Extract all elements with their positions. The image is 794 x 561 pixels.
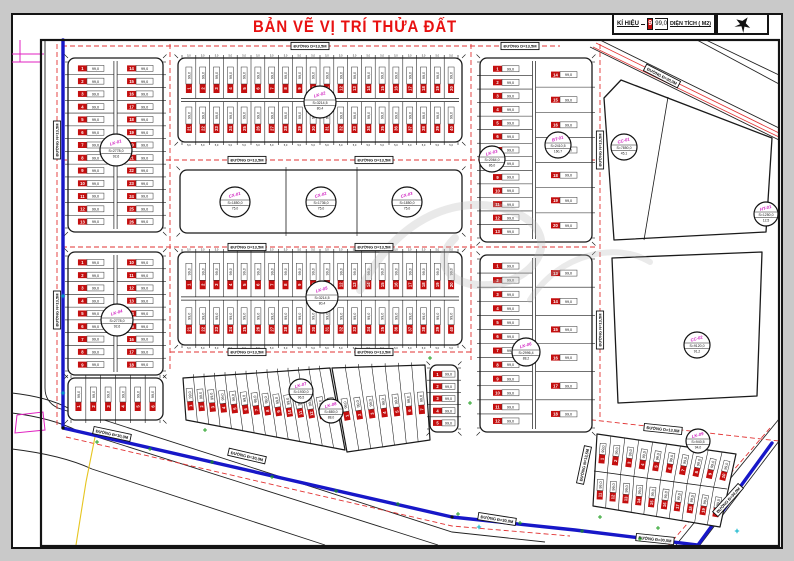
svg-text:21: 21 bbox=[187, 126, 192, 131]
svg-text:99,0: 99,0 bbox=[141, 207, 148, 211]
svg-text:11: 11 bbox=[495, 405, 500, 410]
svg-text:22: 22 bbox=[200, 326, 205, 331]
road-label: ĐƯỜNG Đ=30,0M bbox=[478, 512, 517, 525]
svg-text:99,0: 99,0 bbox=[422, 112, 426, 119]
svg-text:5,0: 5,0 bbox=[339, 143, 343, 147]
svg-text:5,0: 5,0 bbox=[256, 143, 260, 147]
svg-text:5,0: 5,0 bbox=[394, 54, 398, 58]
svg-text:16: 16 bbox=[394, 282, 399, 287]
block-j2: 199,0299,0399,0499,0599,0699,0799,0 bbox=[332, 362, 430, 452]
svg-text:160,7: 160,7 bbox=[554, 149, 562, 153]
svg-text:99,0: 99,0 bbox=[507, 335, 514, 339]
svg-text:26: 26 bbox=[256, 326, 261, 331]
svg-text:99,0: 99,0 bbox=[284, 72, 288, 79]
svg-text:ĐƯỜNG N=13,5M: ĐƯỜNG N=13,5M bbox=[598, 313, 603, 347]
svg-text:99,0: 99,0 bbox=[210, 392, 215, 400]
svg-text:ĐƯỜNG D=13,5M: ĐƯỜNG D=13,5M bbox=[357, 350, 391, 355]
svg-text:ĐƯỜNG D=13,5M: ĐƯỜNG D=13,5M bbox=[503, 44, 537, 49]
svg-text:99,0: 99,0 bbox=[507, 391, 514, 395]
svg-text:5,0: 5,0 bbox=[270, 346, 274, 350]
svg-text:99,0: 99,0 bbox=[151, 391, 155, 398]
svg-text:5,0: 5,0 bbox=[408, 346, 412, 350]
block-j3: 199,0299,0399,0499,0599,0 bbox=[427, 362, 462, 436]
svg-text:S=880,0: S=880,0 bbox=[324, 410, 337, 414]
svg-text:5,0: 5,0 bbox=[353, 143, 357, 147]
svg-text:5,0: 5,0 bbox=[187, 54, 191, 58]
svg-text:99,0: 99,0 bbox=[450, 313, 454, 320]
survey-marker-BT-01: BT-01S=2410,5160,7 bbox=[545, 132, 571, 158]
svg-text:16: 16 bbox=[129, 337, 134, 342]
svg-text:99,0: 99,0 bbox=[107, 391, 111, 398]
svg-text:19: 19 bbox=[129, 130, 134, 135]
road-label: ĐƯỜNG D=13,5M bbox=[355, 243, 393, 250]
svg-text:99,0: 99,0 bbox=[270, 72, 274, 79]
svg-text:ĐƯỜNG N=13,5M: ĐƯỜNG N=13,5M bbox=[55, 123, 60, 157]
svg-text:99,0: 99,0 bbox=[507, 67, 514, 71]
svg-text:24: 24 bbox=[228, 126, 233, 131]
svg-text:5,0: 5,0 bbox=[422, 346, 426, 350]
svg-text:13: 13 bbox=[352, 282, 357, 287]
svg-text:99,0: 99,0 bbox=[312, 268, 316, 275]
svg-text:5,0: 5,0 bbox=[297, 54, 301, 58]
svg-text:20: 20 bbox=[449, 86, 454, 91]
svg-text:99,0: 99,0 bbox=[381, 268, 385, 275]
svg-text:5,0: 5,0 bbox=[394, 248, 398, 252]
legend-sample-id: 9 bbox=[647, 18, 653, 30]
svg-text:99,0: 99,0 bbox=[445, 397, 452, 401]
svg-text:5,0: 5,0 bbox=[297, 143, 301, 147]
svg-text:99,0: 99,0 bbox=[77, 391, 81, 398]
svg-text:99,0: 99,0 bbox=[188, 72, 192, 79]
svg-text:12: 12 bbox=[338, 86, 343, 91]
svg-text:39: 39 bbox=[435, 326, 440, 331]
svg-text:99,0: 99,0 bbox=[298, 268, 302, 275]
svg-text:40: 40 bbox=[449, 126, 454, 131]
svg-text:15: 15 bbox=[553, 327, 558, 332]
svg-text:99,0: 99,0 bbox=[507, 377, 514, 381]
survey-marker-LK-09: LK-09S=940,594,0 bbox=[686, 429, 710, 453]
svg-text:S=7850,0: S=7850,0 bbox=[616, 146, 631, 150]
svg-text:99,0: 99,0 bbox=[92, 338, 99, 342]
svg-text:99,0: 99,0 bbox=[601, 445, 606, 453]
svg-text:28: 28 bbox=[283, 326, 288, 331]
road-label: ĐƯỜNG N=13,5M bbox=[53, 291, 60, 329]
survey-marker-LK-05: LK-05S=3214,580,4 bbox=[306, 281, 338, 313]
svg-text:45,1: 45,1 bbox=[621, 151, 628, 155]
svg-text:99,0: 99,0 bbox=[141, 67, 148, 71]
svg-text:99,0: 99,0 bbox=[141, 363, 148, 367]
svg-text:99,0: 99,0 bbox=[565, 98, 572, 102]
svg-text:12,5: 12,5 bbox=[763, 218, 770, 222]
svg-text:37: 37 bbox=[407, 326, 412, 331]
survey-marker-LK-08: LK-08S=880,088,0 bbox=[319, 399, 343, 423]
svg-text:88,2: 88,2 bbox=[523, 356, 530, 360]
svg-text:99,0: 99,0 bbox=[326, 72, 330, 79]
road-label: ĐƯỜNG N=13,5M bbox=[596, 311, 603, 349]
svg-text:5,0: 5,0 bbox=[422, 143, 426, 147]
road-label: ĐƯỜNG N=13,5M bbox=[577, 446, 592, 485]
svg-text:99,0: 99,0 bbox=[92, 156, 99, 160]
svg-text:99,0: 99,0 bbox=[312, 72, 316, 79]
svg-text:13: 13 bbox=[352, 86, 357, 91]
svg-text:30: 30 bbox=[311, 326, 316, 331]
svg-text:99,0: 99,0 bbox=[215, 313, 219, 320]
svg-text:80,4: 80,4 bbox=[317, 106, 324, 110]
svg-text:23: 23 bbox=[214, 126, 219, 131]
svg-text:17: 17 bbox=[129, 350, 134, 355]
svg-text:15: 15 bbox=[553, 97, 558, 102]
svg-text:99,0: 99,0 bbox=[353, 112, 357, 119]
svg-text:99,0: 99,0 bbox=[565, 123, 572, 127]
page: { "title": "BẢN VẼ VỊ TRÍ THỬA ĐẤT", "le… bbox=[0, 0, 794, 561]
svg-text:99,0: 99,0 bbox=[201, 268, 205, 275]
svg-text:99,0: 99,0 bbox=[92, 131, 99, 135]
svg-text:5,0: 5,0 bbox=[201, 54, 205, 58]
svg-text:5,0: 5,0 bbox=[297, 346, 301, 350]
svg-text:S=9120,0: S=9120,0 bbox=[689, 344, 704, 348]
svg-text:99,0: 99,0 bbox=[445, 385, 452, 389]
svg-text:99,0: 99,0 bbox=[270, 313, 274, 320]
svg-text:99,0: 99,0 bbox=[141, 93, 148, 97]
svg-text:99,0: 99,0 bbox=[229, 268, 233, 275]
svg-text:20: 20 bbox=[553, 223, 558, 228]
svg-text:16: 16 bbox=[553, 123, 558, 128]
svg-text:99,0: 99,0 bbox=[141, 338, 148, 342]
svg-text:99,0: 99,0 bbox=[326, 313, 330, 320]
svg-text:39: 39 bbox=[435, 126, 440, 131]
svg-text:99,0: 99,0 bbox=[408, 268, 412, 275]
survey-marker-LK-02: LK-02S=3214,580,4 bbox=[304, 86, 336, 118]
svg-text:17: 17 bbox=[553, 383, 558, 388]
survey-marker-HT-01: HT-01S=1250,012,5 bbox=[754, 202, 778, 226]
svg-text:92,6: 92,6 bbox=[113, 154, 120, 158]
svg-text:75,0: 75,0 bbox=[404, 206, 411, 210]
svg-text:11: 11 bbox=[129, 273, 134, 278]
svg-text:99,0: 99,0 bbox=[507, 230, 514, 234]
svg-text:99,0: 99,0 bbox=[298, 112, 302, 119]
svg-text:ĐƯỜNG N=13,5M: ĐƯỜNG N=13,5M bbox=[598, 133, 603, 167]
svg-text:26: 26 bbox=[256, 126, 261, 131]
svg-text:99,0: 99,0 bbox=[422, 268, 426, 275]
compass-box bbox=[716, 13, 769, 35]
svg-text:99,0: 99,0 bbox=[284, 112, 288, 119]
svg-text:5,0: 5,0 bbox=[339, 346, 343, 350]
svg-text:27: 27 bbox=[269, 126, 274, 131]
svg-text:99,0: 99,0 bbox=[92, 169, 99, 173]
svg-text:99,0: 99,0 bbox=[122, 391, 126, 398]
svg-text:10: 10 bbox=[495, 390, 500, 395]
svg-text:15: 15 bbox=[129, 79, 134, 84]
svg-text:99,0: 99,0 bbox=[257, 268, 261, 275]
svg-text:99,0: 99,0 bbox=[141, 220, 148, 224]
svg-text:99,0: 99,0 bbox=[92, 391, 96, 398]
svg-text:S=3214,5: S=3214,5 bbox=[314, 296, 329, 300]
svg-text:99,0: 99,0 bbox=[270, 268, 274, 275]
svg-text:18: 18 bbox=[421, 282, 426, 287]
svg-text:99,0: 99,0 bbox=[220, 393, 225, 401]
svg-text:99,0: 99,0 bbox=[612, 483, 616, 490]
svg-text:ĐƯỜNG D=13,5M: ĐƯỜNG D=13,5M bbox=[357, 245, 391, 250]
svg-text:99,0: 99,0 bbox=[229, 313, 233, 320]
svg-text:10: 10 bbox=[80, 181, 85, 186]
svg-text:5,0: 5,0 bbox=[435, 248, 439, 252]
svg-text:5,0: 5,0 bbox=[408, 248, 412, 252]
svg-text:12: 12 bbox=[495, 419, 500, 424]
svg-text:99,0: 99,0 bbox=[92, 144, 99, 148]
svg-text:19: 19 bbox=[553, 198, 558, 203]
svg-text:5,0: 5,0 bbox=[422, 248, 426, 252]
road-label: ĐƯỜNG N=13,5M bbox=[596, 131, 603, 169]
svg-text:5,0: 5,0 bbox=[325, 346, 329, 350]
svg-text:99,0: 99,0 bbox=[141, 195, 148, 199]
svg-text:5,0: 5,0 bbox=[449, 346, 453, 350]
svg-text:99,0: 99,0 bbox=[201, 313, 205, 320]
svg-text:99,0: 99,0 bbox=[141, 156, 148, 160]
svg-text:99,0: 99,0 bbox=[243, 313, 247, 320]
svg-text:5,0: 5,0 bbox=[325, 248, 329, 252]
svg-text:11: 11 bbox=[80, 194, 85, 199]
svg-text:99,0: 99,0 bbox=[141, 325, 148, 329]
svg-text:99,0: 99,0 bbox=[507, 363, 514, 367]
svg-text:99,0: 99,0 bbox=[92, 325, 99, 329]
svg-text:33: 33 bbox=[352, 326, 357, 331]
svg-text:99,0: 99,0 bbox=[92, 105, 99, 109]
svg-text:99,0: 99,0 bbox=[422, 313, 426, 320]
survey-marker-CC-01: CC-01S=7850,045,1 bbox=[611, 134, 637, 160]
svg-text:35: 35 bbox=[380, 126, 385, 131]
svg-text:21: 21 bbox=[187, 326, 192, 331]
svg-text:12: 12 bbox=[495, 215, 500, 220]
svg-text:5,0: 5,0 bbox=[339, 248, 343, 252]
legend-box: KÍ HIỆU 9 99,0 DIỆN TÍCH ( M2) bbox=[612, 13, 716, 35]
svg-text:99,0: 99,0 bbox=[507, 81, 514, 85]
svg-text:99,0: 99,0 bbox=[141, 299, 148, 303]
svg-text:29: 29 bbox=[297, 326, 302, 331]
svg-text:S=1850,0: S=1850,0 bbox=[227, 201, 242, 205]
svg-text:99,0: 99,0 bbox=[215, 72, 219, 79]
svg-text:99,0: 99,0 bbox=[243, 268, 247, 275]
svg-text:5,0: 5,0 bbox=[435, 143, 439, 147]
road-label: ĐƯỜNG D=13,5M bbox=[228, 348, 266, 355]
svg-text:99,0: 99,0 bbox=[565, 199, 572, 203]
svg-text:99,0: 99,0 bbox=[243, 72, 247, 79]
svg-text:10: 10 bbox=[129, 260, 134, 265]
svg-text:18: 18 bbox=[421, 86, 426, 91]
svg-text:99,0: 99,0 bbox=[419, 395, 424, 402]
survey-marker-CX-03: CX-03S=1850,075,0 bbox=[392, 187, 422, 217]
svg-text:18: 18 bbox=[553, 412, 558, 417]
svg-text:99,0: 99,0 bbox=[651, 489, 656, 497]
svg-text:36: 36 bbox=[394, 126, 399, 131]
svg-text:99,0: 99,0 bbox=[565, 328, 572, 332]
svg-text:99,0: 99,0 bbox=[141, 80, 148, 84]
block-f bbox=[612, 252, 762, 403]
svg-text:20: 20 bbox=[449, 282, 454, 287]
svg-text:99,0: 99,0 bbox=[565, 300, 572, 304]
svg-text:25: 25 bbox=[242, 326, 247, 331]
svg-text:99,0: 99,0 bbox=[339, 72, 343, 79]
svg-text:5,0: 5,0 bbox=[215, 248, 219, 252]
svg-text:5,0: 5,0 bbox=[201, 248, 205, 252]
svg-text:99,0: 99,0 bbox=[136, 391, 140, 398]
svg-text:13: 13 bbox=[80, 219, 85, 224]
svg-text:S=2996,4: S=2996,4 bbox=[518, 351, 533, 355]
svg-text:5,0: 5,0 bbox=[242, 143, 246, 147]
svg-text:5,0: 5,0 bbox=[270, 143, 274, 147]
svg-text:99,0: 99,0 bbox=[422, 72, 426, 79]
svg-text:99,0: 99,0 bbox=[381, 112, 385, 119]
svg-text:99,0: 99,0 bbox=[436, 112, 440, 119]
survey-marker-LK-07: LK-07S=1930,096,5 bbox=[289, 379, 313, 403]
svg-text:5,0: 5,0 bbox=[366, 54, 370, 58]
svg-text:16: 16 bbox=[394, 86, 399, 91]
svg-text:S=1250,0: S=1250,0 bbox=[758, 213, 773, 217]
svg-text:99,0: 99,0 bbox=[395, 72, 399, 79]
svg-text:99,0: 99,0 bbox=[599, 481, 603, 488]
svg-text:99,0: 99,0 bbox=[92, 287, 99, 291]
svg-text:99,0: 99,0 bbox=[394, 397, 399, 405]
svg-text:99,0: 99,0 bbox=[229, 72, 233, 79]
svg-text:99,0: 99,0 bbox=[92, 363, 99, 367]
svg-text:75,0: 75,0 bbox=[232, 206, 239, 210]
svg-text:34: 34 bbox=[366, 326, 371, 331]
svg-text:31: 31 bbox=[325, 326, 330, 331]
svg-text:99,0: 99,0 bbox=[229, 112, 233, 119]
svg-text:99,0: 99,0 bbox=[243, 112, 247, 119]
svg-text:5,0: 5,0 bbox=[366, 143, 370, 147]
svg-text:99,0: 99,0 bbox=[445, 422, 452, 426]
svg-text:ĐƯỜNG D=13,5M: ĐƯỜNG D=13,5M bbox=[293, 44, 327, 49]
svg-text:99,0: 99,0 bbox=[353, 268, 357, 275]
svg-text:99,0: 99,0 bbox=[92, 67, 99, 71]
svg-text:99,0: 99,0 bbox=[141, 312, 148, 316]
svg-text:99,0: 99,0 bbox=[367, 112, 371, 119]
svg-text:99,0: 99,0 bbox=[215, 112, 219, 119]
svg-text:15: 15 bbox=[380, 282, 385, 287]
svg-text:99,0: 99,0 bbox=[284, 313, 288, 320]
svg-text:14: 14 bbox=[553, 299, 558, 304]
block-e bbox=[604, 80, 772, 240]
svg-text:99,0: 99,0 bbox=[284, 268, 288, 275]
svg-text:88,0: 88,0 bbox=[328, 415, 335, 419]
svg-text:99,0: 99,0 bbox=[507, 293, 514, 297]
svg-text:99,0: 99,0 bbox=[92, 261, 99, 265]
svg-text:ĐƯỜNG D=13,5M: ĐƯỜNG D=13,5M bbox=[230, 158, 264, 163]
svg-text:5,0: 5,0 bbox=[449, 143, 453, 147]
svg-text:26: 26 bbox=[129, 219, 134, 224]
svg-text:99,0: 99,0 bbox=[92, 207, 99, 211]
svg-text:5,0: 5,0 bbox=[380, 54, 384, 58]
svg-text:99,0: 99,0 bbox=[565, 384, 572, 388]
block-g2: 199,0299,0399,0499,0599,0699,0 bbox=[65, 375, 167, 424]
svg-text:ĐƯỜNG D=13,5M: ĐƯỜNG D=13,5M bbox=[357, 158, 391, 163]
svg-text:99,0: 99,0 bbox=[199, 392, 204, 400]
svg-text:99,0: 99,0 bbox=[141, 261, 148, 265]
svg-text:99,0: 99,0 bbox=[664, 491, 669, 499]
svg-text:99,0: 99,0 bbox=[507, 420, 514, 424]
svg-text:94,0: 94,0 bbox=[695, 445, 702, 449]
svg-text:25: 25 bbox=[129, 207, 134, 212]
svg-text:99,0: 99,0 bbox=[141, 274, 148, 278]
svg-text:5,0: 5,0 bbox=[270, 248, 274, 252]
svg-text:99,0: 99,0 bbox=[141, 182, 148, 186]
svg-text:5,0: 5,0 bbox=[311, 248, 315, 252]
svg-text:99,0: 99,0 bbox=[436, 313, 440, 320]
svg-text:30: 30 bbox=[311, 126, 316, 131]
svg-text:75,0: 75,0 bbox=[318, 206, 325, 210]
svg-text:14: 14 bbox=[553, 72, 558, 77]
svg-text:99,0: 99,0 bbox=[141, 105, 148, 109]
svg-text:99,0: 99,0 bbox=[298, 72, 302, 79]
svg-text:99,0: 99,0 bbox=[141, 131, 148, 135]
svg-text:99,0: 99,0 bbox=[625, 485, 629, 492]
svg-text:5,0: 5,0 bbox=[311, 54, 315, 58]
svg-text:5,0: 5,0 bbox=[201, 143, 205, 147]
svg-text:99,0: 99,0 bbox=[141, 350, 148, 354]
svg-text:5,0: 5,0 bbox=[284, 54, 288, 58]
svg-text:5,0: 5,0 bbox=[270, 54, 274, 58]
svg-text:99,0: 99,0 bbox=[367, 72, 371, 79]
survey-marker-LK-03: LK-03S=2064,086,0 bbox=[479, 146, 505, 172]
svg-text:16: 16 bbox=[553, 355, 558, 360]
svg-text:99,0: 99,0 bbox=[339, 268, 343, 275]
svg-text:ĐƯỜNG N=13,5M: ĐƯỜNG N=13,5M bbox=[55, 293, 60, 327]
svg-text:99,0: 99,0 bbox=[188, 112, 192, 119]
svg-text:33: 33 bbox=[352, 126, 357, 131]
svg-text:99,0: 99,0 bbox=[507, 216, 514, 220]
svg-text:99,0: 99,0 bbox=[507, 149, 514, 153]
svg-text:S=3214,5: S=3214,5 bbox=[312, 101, 327, 105]
svg-text:17: 17 bbox=[407, 86, 412, 91]
svg-text:99,0: 99,0 bbox=[507, 122, 514, 126]
svg-text:5,0: 5,0 bbox=[284, 346, 288, 350]
svg-text:99,0: 99,0 bbox=[141, 144, 148, 148]
svg-text:99,0: 99,0 bbox=[450, 112, 454, 119]
svg-text:99,0: 99,0 bbox=[615, 447, 620, 455]
svg-text:99,0: 99,0 bbox=[565, 224, 572, 228]
svg-text:5,0: 5,0 bbox=[187, 346, 191, 350]
road-label: ĐƯỜNG D=13,5M bbox=[228, 156, 266, 163]
svg-text:5,0: 5,0 bbox=[311, 143, 315, 147]
svg-text:99,0: 99,0 bbox=[201, 72, 205, 79]
drawing-title-text: BẢN VẼ VỊ TRÍ THỬA ĐẤT bbox=[253, 17, 457, 36]
svg-text:99,0: 99,0 bbox=[507, 108, 514, 112]
svg-text:5,0: 5,0 bbox=[422, 54, 426, 58]
svg-text:99,0: 99,0 bbox=[339, 112, 343, 119]
svg-text:99,0: 99,0 bbox=[92, 80, 99, 84]
road-label: ĐƯỜNG D=13,5M bbox=[355, 156, 393, 163]
svg-text:16: 16 bbox=[129, 92, 134, 97]
svg-text:5,0: 5,0 bbox=[256, 54, 260, 58]
svg-text:96,5: 96,5 bbox=[298, 395, 305, 399]
svg-text:99,0: 99,0 bbox=[141, 118, 148, 122]
svg-text:99,0: 99,0 bbox=[270, 112, 274, 119]
svg-text:S=2778,0: S=2778,0 bbox=[108, 149, 123, 153]
svg-text:25: 25 bbox=[242, 126, 247, 131]
svg-text:10: 10 bbox=[495, 188, 500, 193]
survey-marker-LK-06: LK-06S=2996,488,2 bbox=[512, 338, 540, 366]
svg-text:99,0: 99,0 bbox=[507, 189, 514, 193]
svg-text:99,0: 99,0 bbox=[257, 112, 261, 119]
legend-sample-area: 99,0 bbox=[655, 18, 668, 30]
svg-text:18: 18 bbox=[553, 173, 558, 178]
svg-text:99,0: 99,0 bbox=[638, 487, 643, 495]
svg-text:27: 27 bbox=[269, 326, 274, 331]
svg-text:99,0: 99,0 bbox=[565, 356, 572, 360]
svg-text:22: 22 bbox=[129, 168, 134, 173]
svg-text:5,0: 5,0 bbox=[311, 346, 315, 350]
svg-text:99,0: 99,0 bbox=[215, 268, 219, 275]
